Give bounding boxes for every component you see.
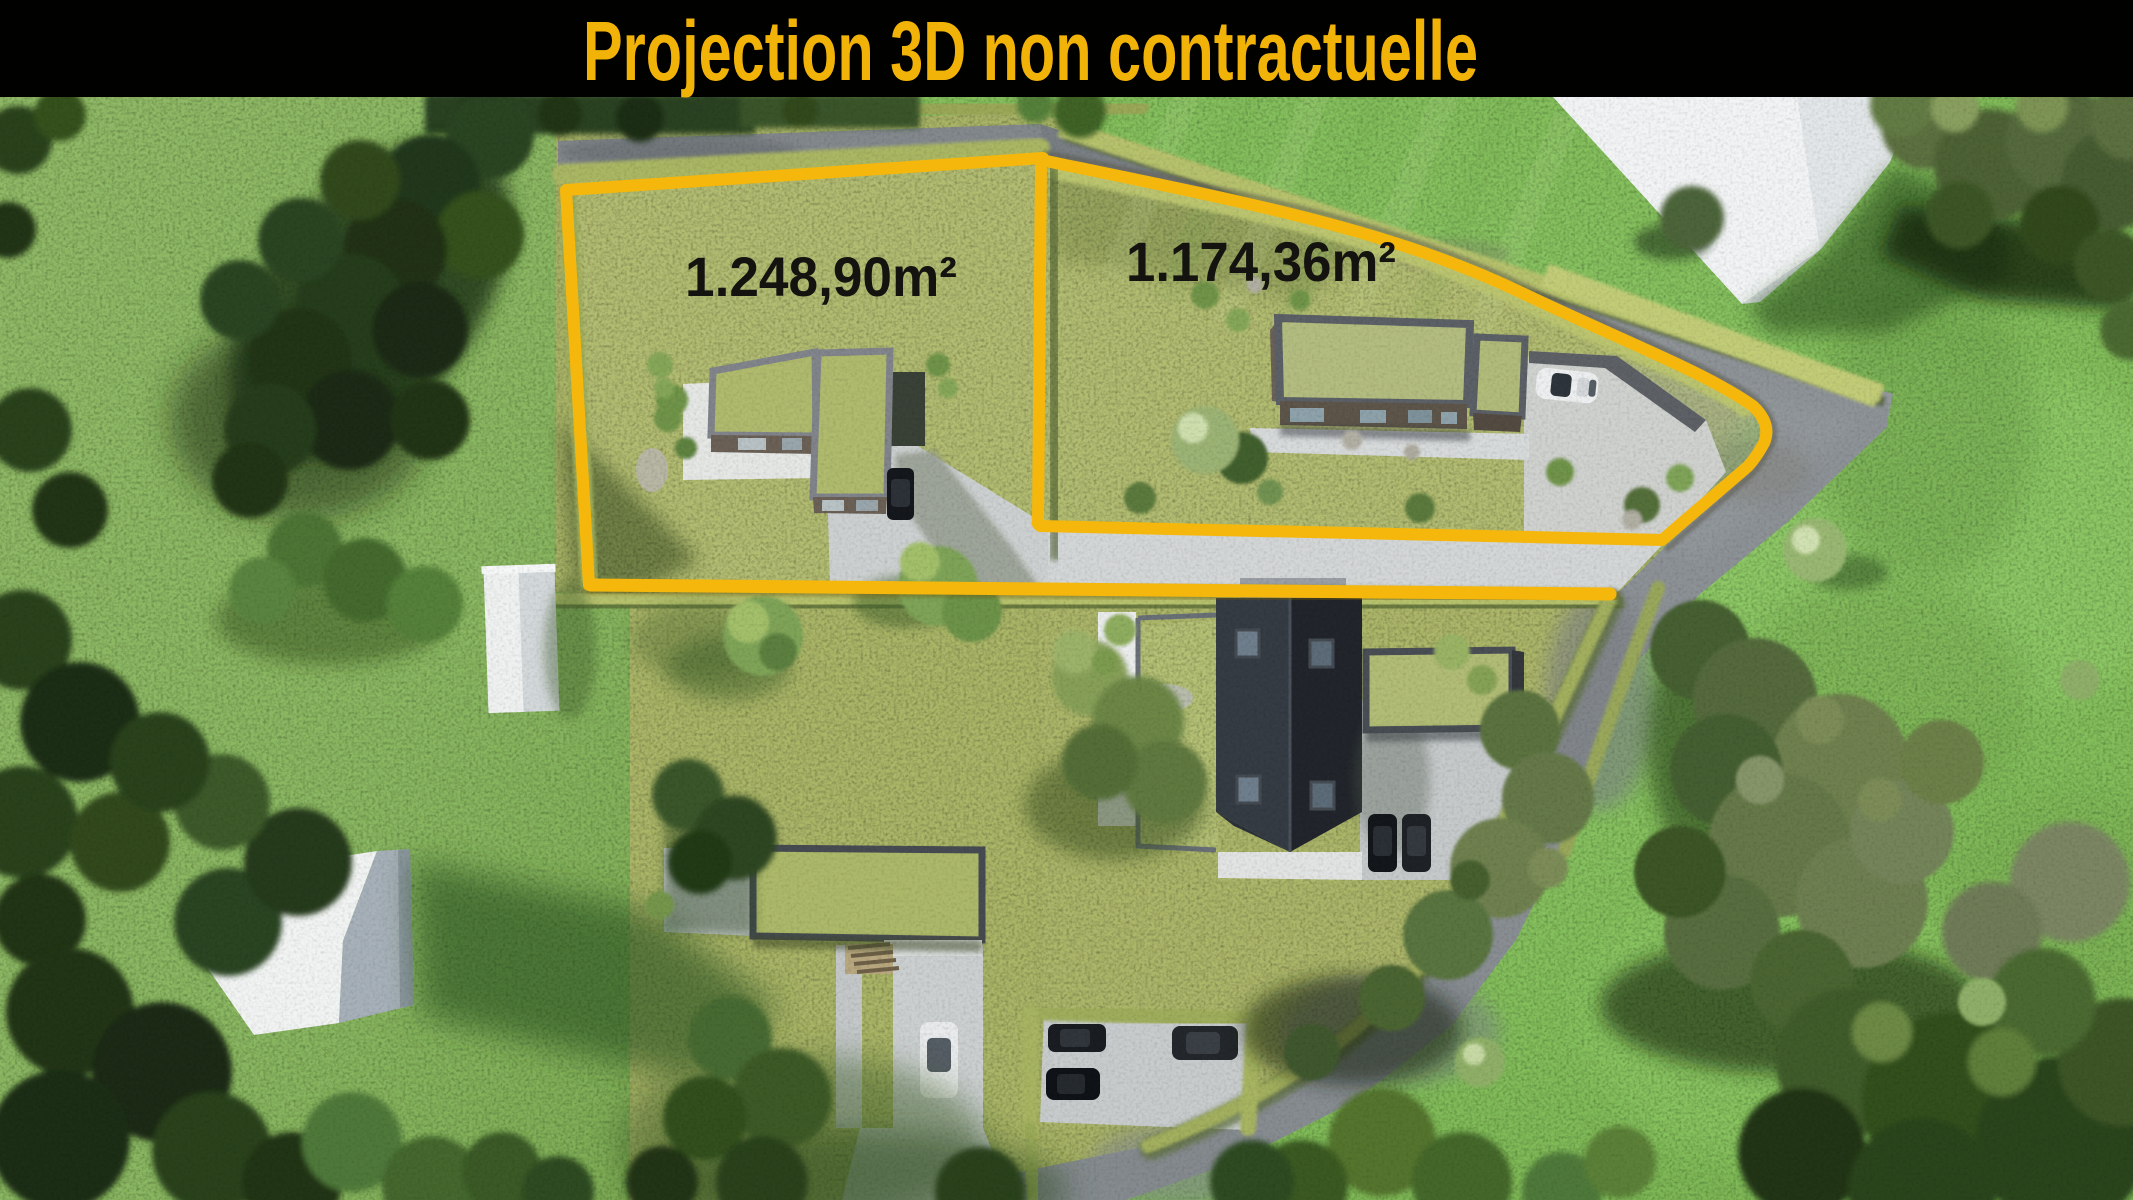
svg-text:Projection 3D non contractuell: Projection 3D non contractuelle [583, 4, 1478, 98]
svg-text:1.248,90m²: 1.248,90m² [685, 245, 957, 308]
svg-text:1.174,36m²: 1.174,36m² [1126, 230, 1396, 293]
